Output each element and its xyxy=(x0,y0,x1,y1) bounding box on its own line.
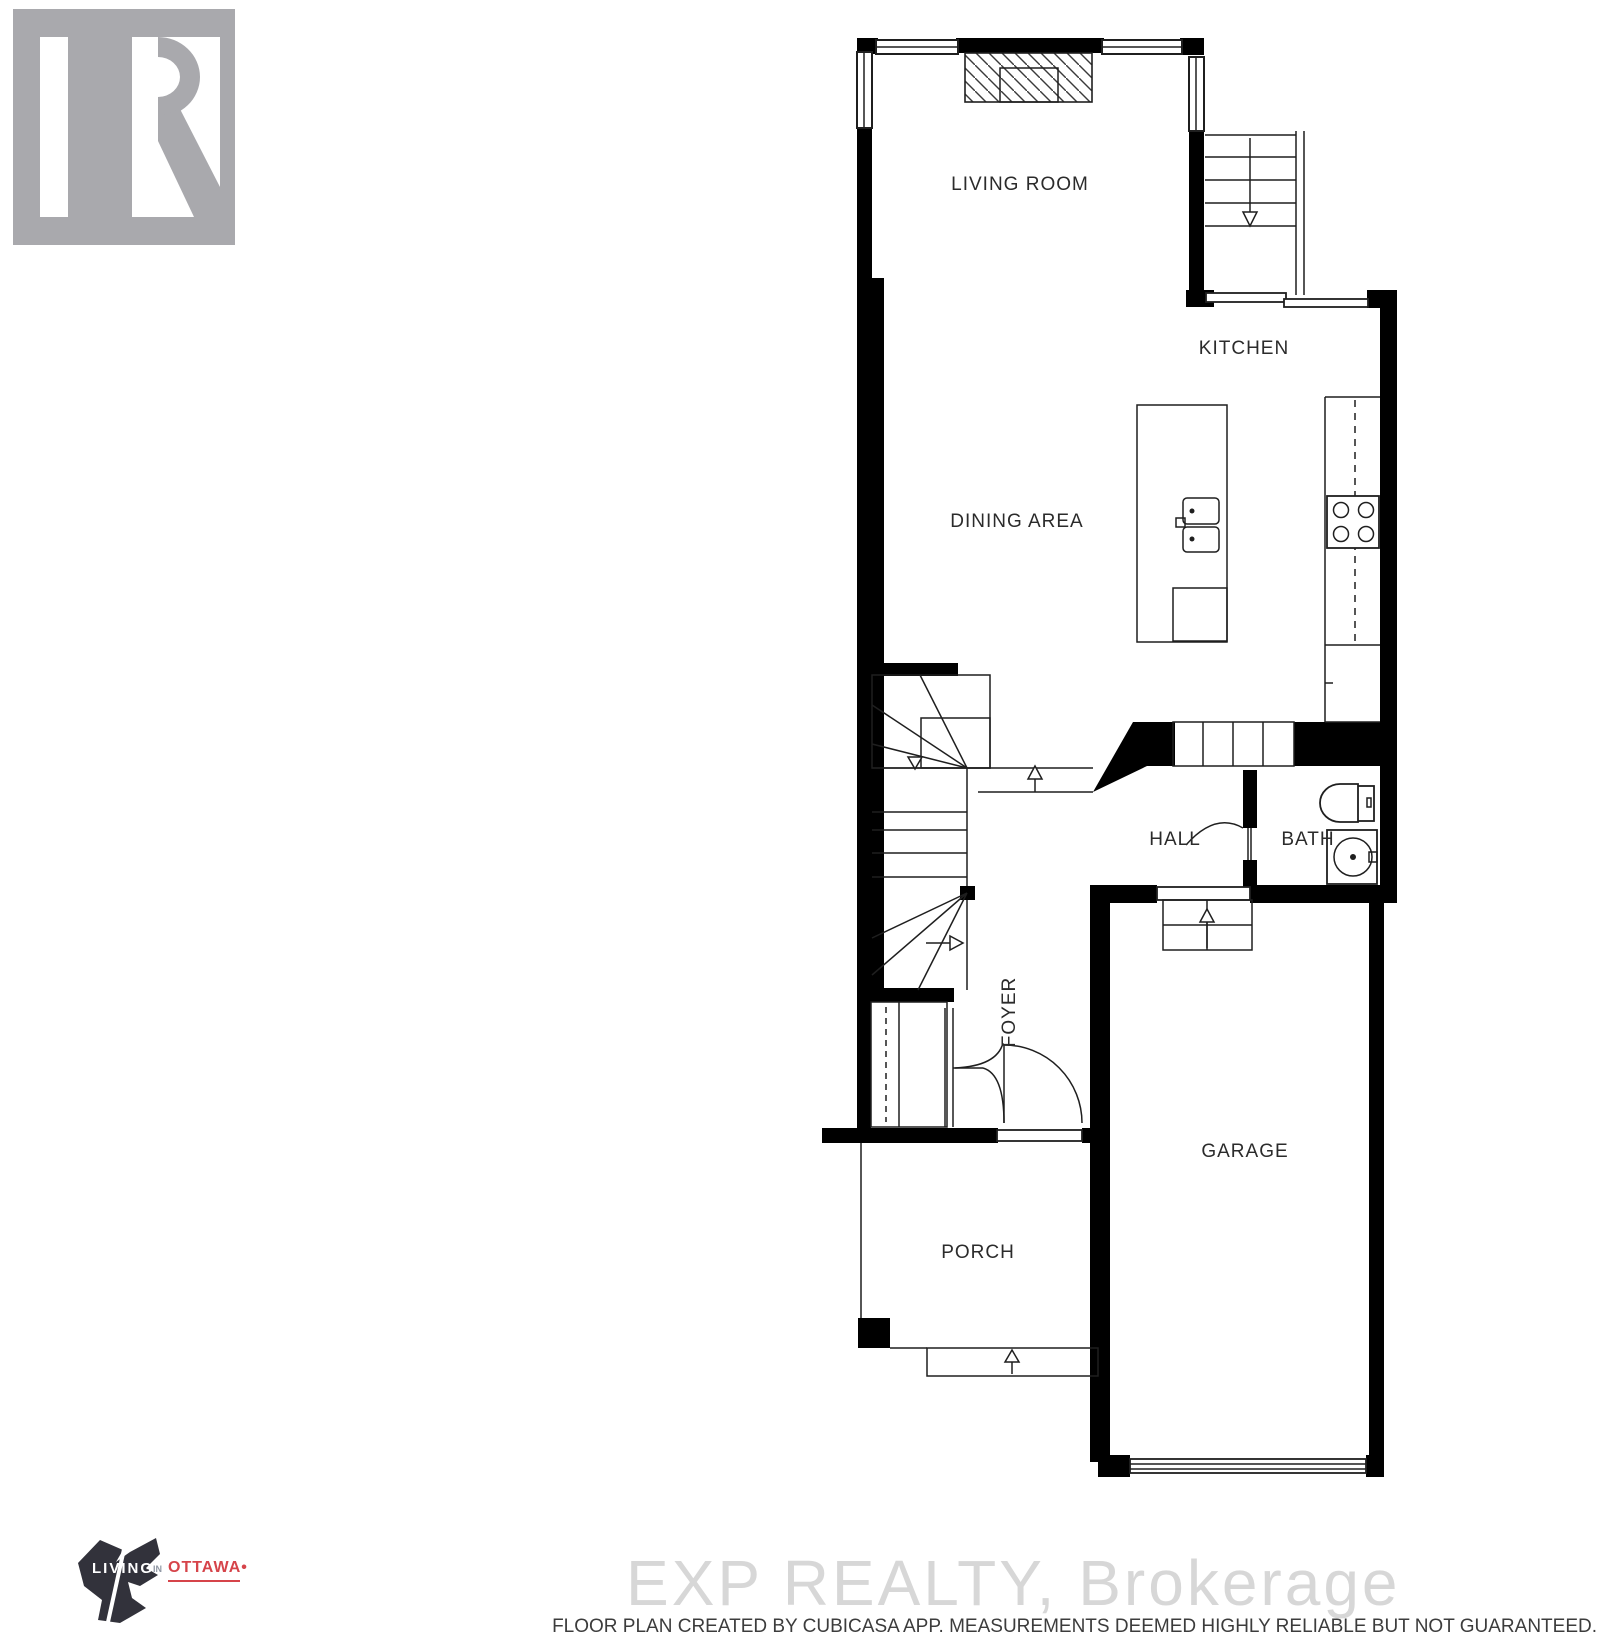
porch-step xyxy=(927,1348,1098,1376)
entry-staircase xyxy=(872,675,1093,990)
steps-hall-to-garage xyxy=(1157,887,1252,950)
stairs-up-arrow xyxy=(1200,909,1214,922)
room-label-dining-area: DINING AREA xyxy=(950,511,1083,533)
floor-plan-disclaimer: FLOOR PLAN CREATED BY CUBICASA APP. MEAS… xyxy=(552,1616,1597,1638)
door-arc-icon xyxy=(955,1043,1003,1068)
window-icon-left xyxy=(857,52,872,128)
stairs-direction-arrow xyxy=(950,936,963,950)
ottawa-map-icon xyxy=(68,1528,258,1638)
ottawa-logo-underline xyxy=(168,1580,240,1582)
room-label-living-room: LIVING ROOM xyxy=(951,174,1089,196)
kitchen-island xyxy=(1137,405,1227,642)
front-door-icon xyxy=(997,1045,1082,1141)
garage-door-icon xyxy=(1130,1459,1366,1473)
porch-outline xyxy=(861,1143,927,1348)
stove-icon xyxy=(1327,496,1379,548)
stairs-down-arrow xyxy=(1243,212,1257,226)
foyer-interior-doors xyxy=(945,1008,1004,1127)
stairs-down-arrow xyxy=(908,757,922,769)
living-in-ottawa-logo: LIVING IN OTTAWA• xyxy=(68,1528,258,1638)
ottawa-logo-word-living: LIVING xyxy=(92,1560,154,1577)
ottawa-logo-word-in: IN xyxy=(153,1564,162,1574)
kitchen-entry-thresholds xyxy=(1206,293,1368,307)
room-label-garage: GARAGE xyxy=(1201,1141,1288,1163)
room-label-hall: HALL xyxy=(1149,829,1201,851)
window-icon-top-left xyxy=(876,40,958,54)
fireplace-icon xyxy=(965,53,1092,102)
door-arc-icon xyxy=(983,1068,1004,1123)
stairs-to-upper-floor xyxy=(1205,131,1304,295)
steps-kitchen-to-hall xyxy=(1173,722,1294,766)
ottawa-logo-word-ottawa: OTTAWA• xyxy=(168,1559,248,1577)
room-label-porch: PORCH xyxy=(941,1242,1015,1264)
toilet-icon xyxy=(1320,784,1374,822)
entry-up-arrow xyxy=(1005,1350,1019,1362)
dishwasher-icon xyxy=(1173,588,1227,641)
floor-plan-canvas xyxy=(0,0,1600,1644)
door-arc-icon xyxy=(1004,1045,1082,1123)
room-label-foyer: FOYER xyxy=(999,977,1021,1047)
room-label-kitchen: KITCHEN xyxy=(1199,338,1289,360)
island-sink-icon xyxy=(1176,498,1219,552)
kitchen-counter xyxy=(1325,397,1380,722)
foyer-closet xyxy=(871,1002,947,1127)
window-icon-top-right xyxy=(1102,40,1182,54)
brokerage-watermark: EXP REALTY, Brokerage xyxy=(626,1546,1401,1620)
window-icon-right xyxy=(1189,57,1204,131)
room-label-bath: BATH xyxy=(1281,829,1334,851)
